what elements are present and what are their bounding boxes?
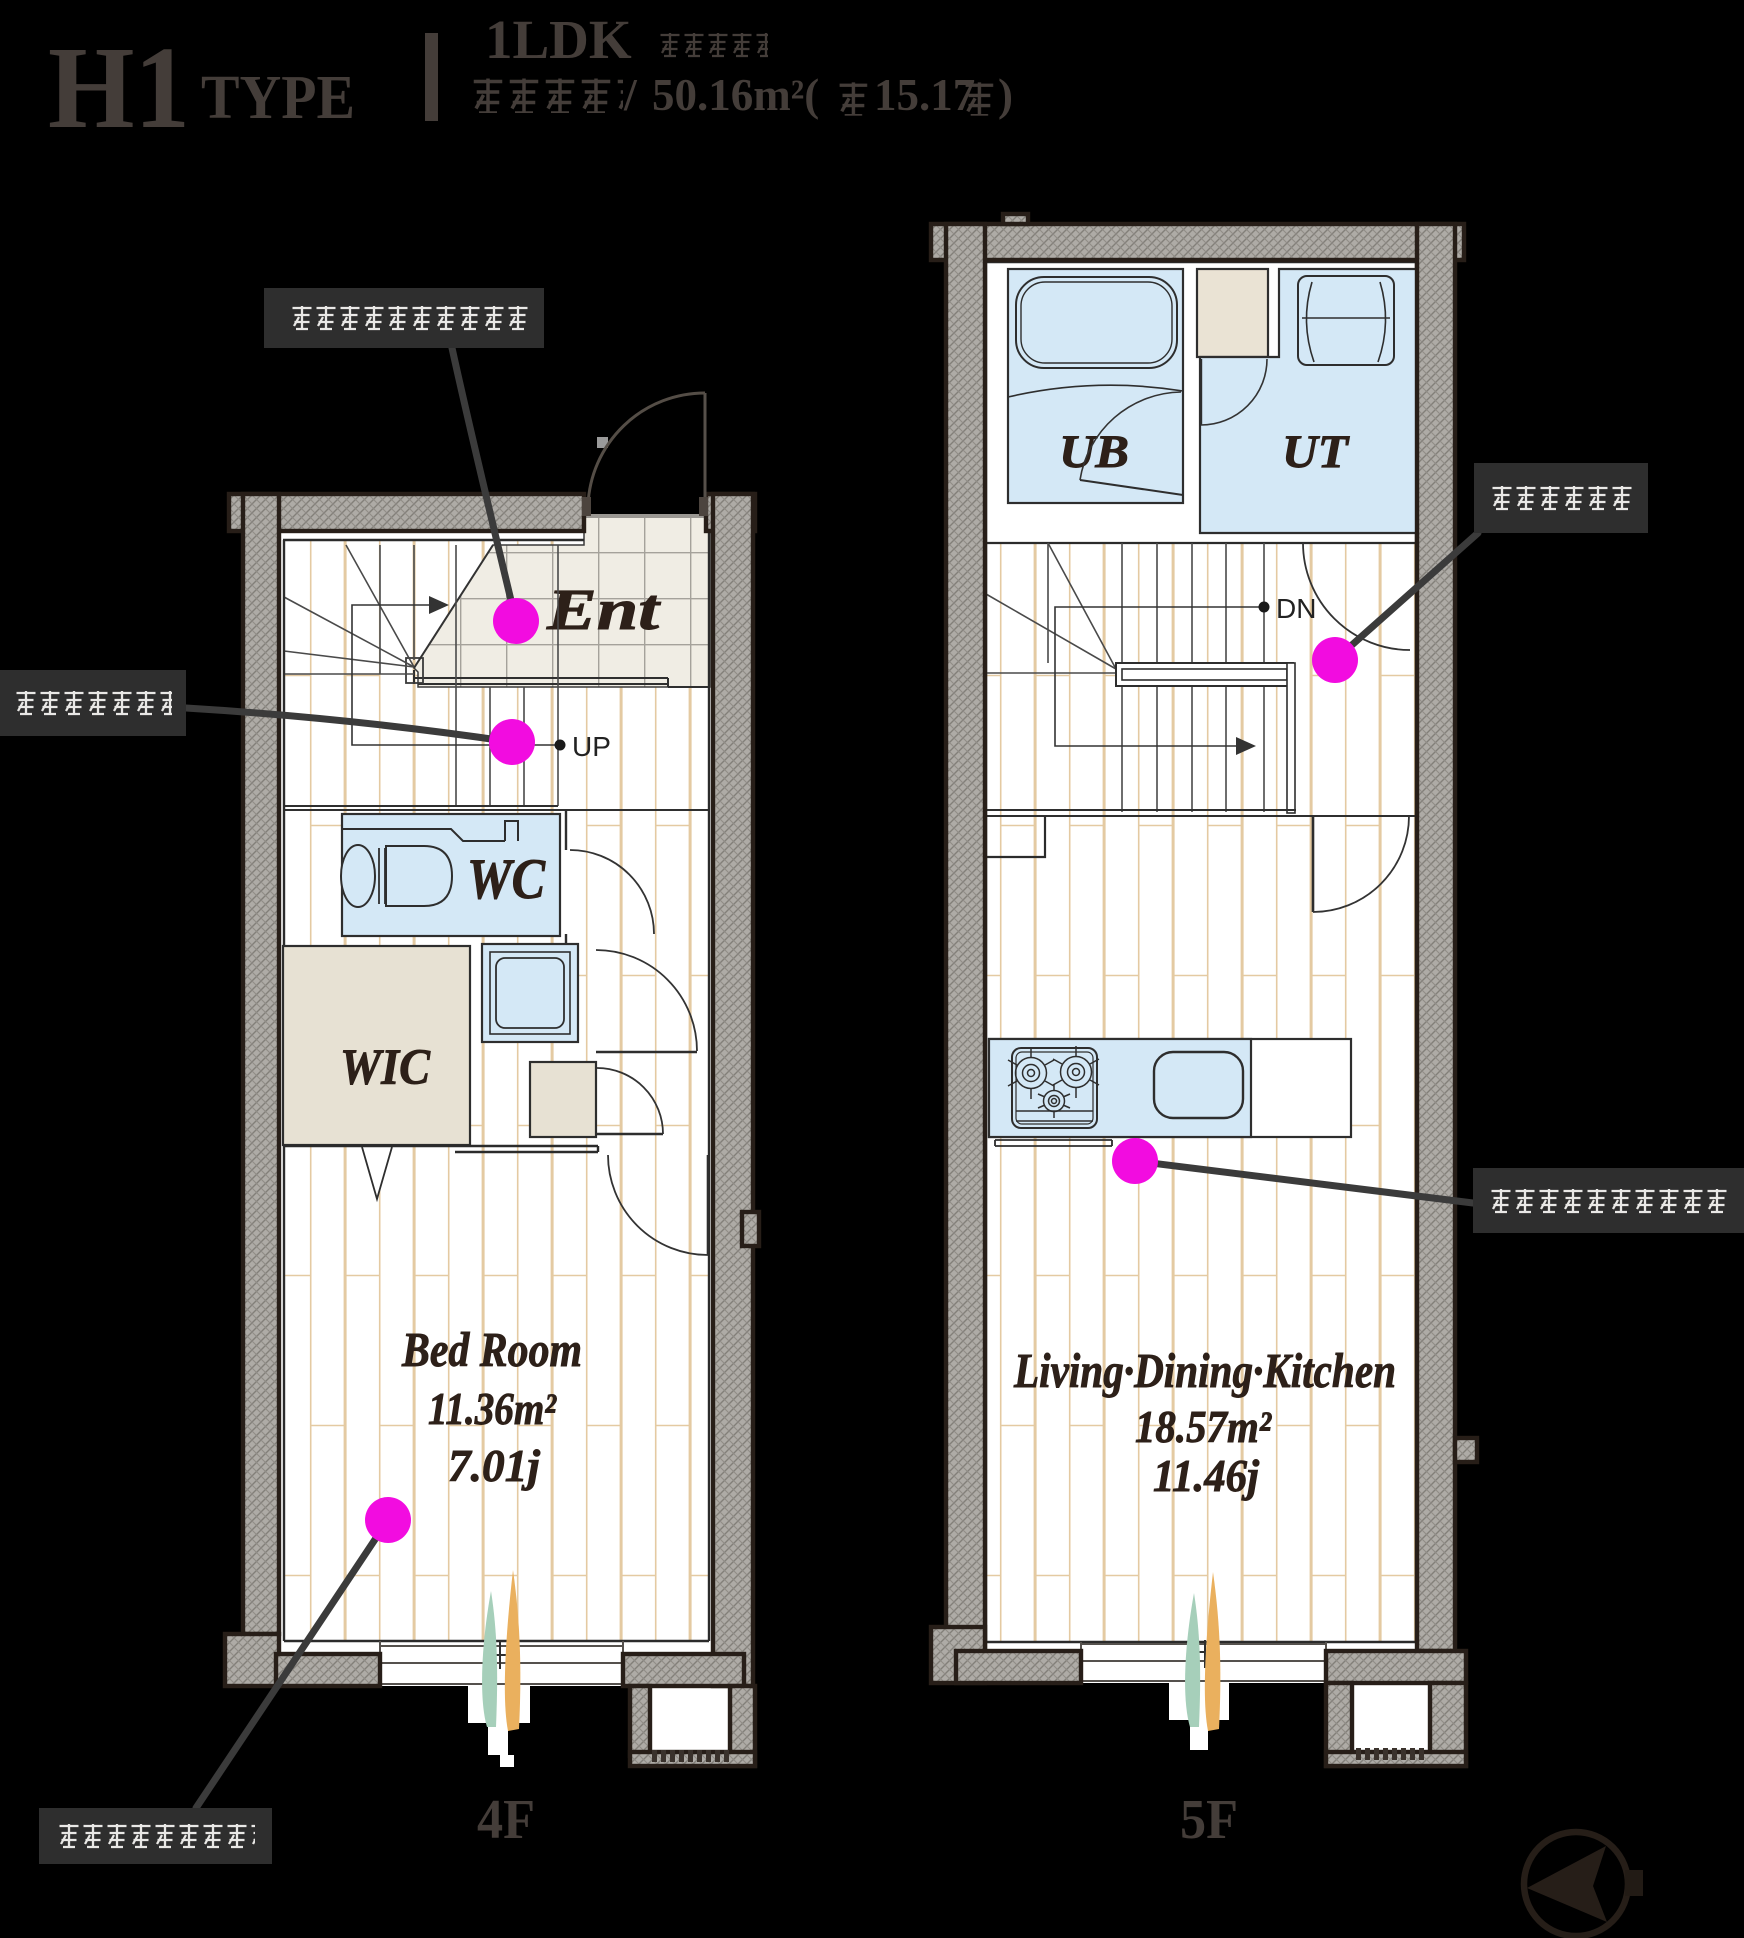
svg-text:WC: WC bbox=[467, 848, 546, 911]
svg-text:15.17: 15.17 bbox=[874, 70, 975, 120]
svg-text:1LDK: 1LDK bbox=[485, 9, 632, 70]
svg-text:UT: UT bbox=[1282, 426, 1350, 478]
svg-text:4F: 4F bbox=[477, 1789, 535, 1851]
svg-text:): ) bbox=[998, 70, 1013, 120]
svg-text:Living·Dining·Kitchen: Living·Dining·Kitchen bbox=[1013, 1343, 1396, 1398]
svg-text:DN: DN bbox=[1276, 593, 1316, 624]
svg-text:11.36m²: 11.36m² bbox=[428, 1384, 557, 1434]
svg-text:18.57m²: 18.57m² bbox=[1135, 1402, 1272, 1452]
svg-text:5F: 5F bbox=[1180, 1789, 1238, 1851]
svg-text:H1: H1 bbox=[48, 22, 190, 153]
svg-text:TYPE: TYPE bbox=[201, 64, 355, 132]
svg-text:7.01j: 7.01j bbox=[448, 1441, 540, 1491]
svg-text:UP: UP bbox=[572, 731, 611, 762]
svg-text:50.16m²(: 50.16m²( bbox=[652, 70, 819, 120]
svg-text:WIC: WIC bbox=[340, 1040, 431, 1096]
svg-text:Ent: Ent bbox=[546, 577, 662, 642]
svg-text:/: / bbox=[623, 69, 638, 120]
svg-text:UB: UB bbox=[1059, 426, 1129, 478]
svg-text:11.46j: 11.46j bbox=[1153, 1451, 1259, 1501]
svg-text:Bed Room: Bed Room bbox=[401, 1322, 582, 1377]
